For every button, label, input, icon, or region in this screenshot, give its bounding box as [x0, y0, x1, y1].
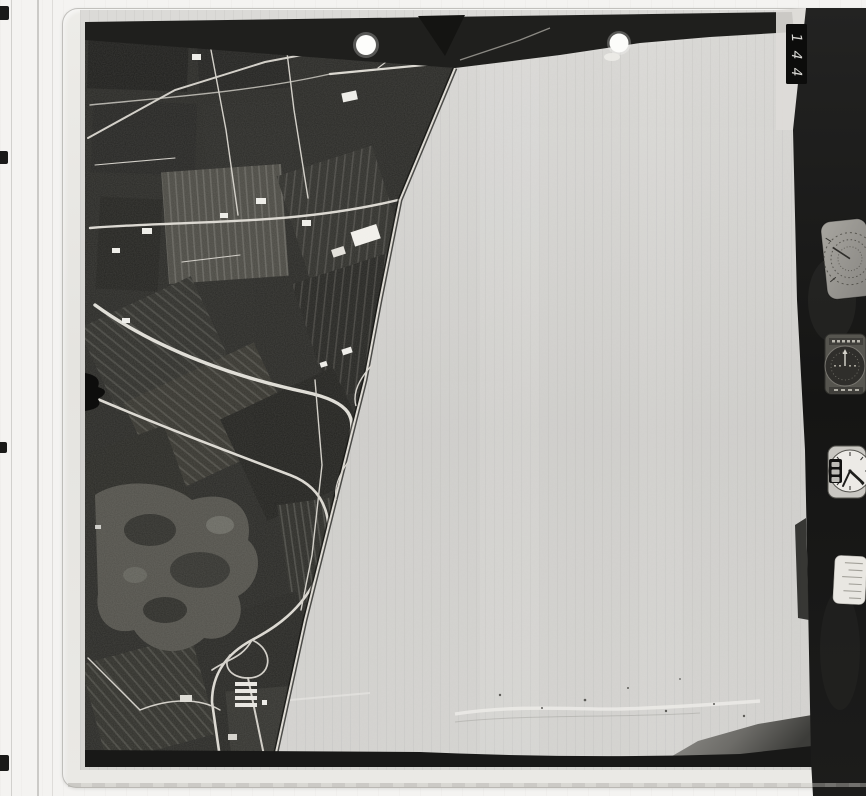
- aerial-photograph: [80, 10, 812, 770]
- page-crease-line: [52, 0, 53, 796]
- edge-tick-mark: [0, 755, 9, 771]
- level-indicator-dial: [825, 334, 866, 394]
- scan-page: 1 4 4: [0, 0, 866, 796]
- frame-number-tab: 1 4 4: [786, 24, 807, 84]
- page-crease-line: [11, 0, 12, 796]
- clock-dial: [828, 446, 866, 498]
- film-edge-band: 1 4 4: [770, 0, 866, 796]
- page-crease-line: [37, 0, 39, 796]
- sleeve-bottom-seam: [68, 783, 866, 787]
- frame-number-digit: 1: [788, 33, 804, 43]
- edge-tick-mark: [0, 442, 7, 453]
- data-plate: [833, 555, 866, 605]
- band-smudge: [820, 590, 860, 710]
- edge-tick-mark: [0, 151, 8, 164]
- frame-number-digit: 4: [788, 67, 804, 76]
- edge-tick-mark: [0, 6, 9, 20]
- altimeter-dial: [820, 217, 866, 300]
- frame-number-digit: 4: [788, 50, 804, 59]
